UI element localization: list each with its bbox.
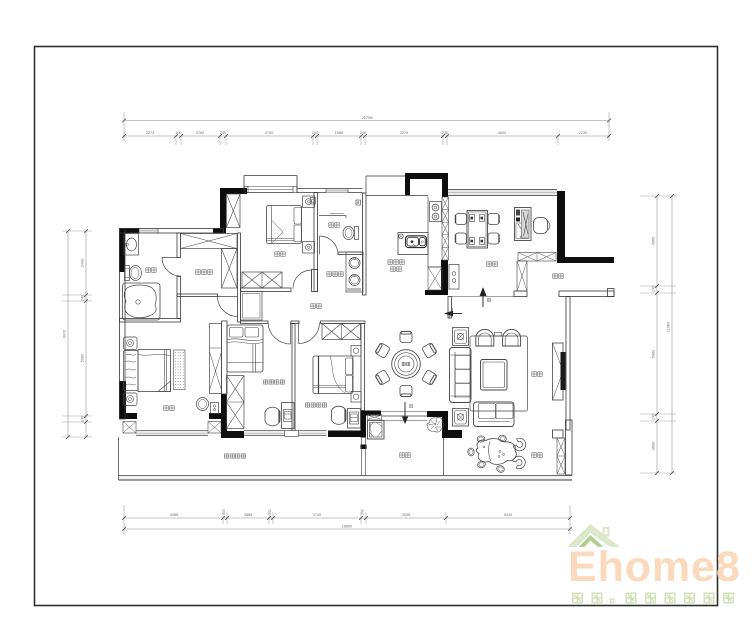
svg-text:3760: 3760 [196, 131, 204, 135]
svg-text:4060: 4060 [652, 237, 656, 245]
svg-text:11064: 11064 [667, 322, 671, 332]
svg-text:4068: 4068 [170, 513, 178, 517]
svg-text:240: 240 [652, 414, 656, 420]
svg-text:5430: 5430 [504, 513, 512, 517]
svg-text:240: 240 [220, 131, 226, 135]
svg-text:240: 240 [81, 416, 85, 422]
svg-text:100: 100 [312, 131, 318, 135]
svg-text:26798: 26798 [361, 115, 373, 120]
svg-text:240: 240 [222, 509, 226, 515]
svg-text:4600: 4600 [498, 131, 506, 135]
svg-text:240: 240 [81, 295, 85, 301]
svg-text:3889: 3889 [244, 513, 252, 517]
svg-text:3740: 3740 [313, 513, 321, 517]
svg-text:240: 240 [652, 286, 656, 292]
svg-text:5060: 5060 [81, 354, 85, 362]
svg-text:Ehome8: Ehome8 [568, 543, 741, 591]
svg-text:16890: 16890 [342, 525, 353, 529]
svg-text:240: 240 [360, 131, 366, 135]
svg-text:2400: 2400 [81, 259, 85, 267]
svg-text:240: 240 [268, 509, 272, 515]
svg-text:9470: 9470 [63, 330, 67, 338]
svg-text:3750: 3750 [265, 131, 273, 135]
svg-text:3229: 3229 [400, 131, 408, 135]
svg-text:100: 100 [175, 131, 181, 135]
svg-text:2230: 2230 [579, 131, 587, 135]
svg-text:2273: 2273 [146, 131, 154, 135]
svg-text:3680: 3680 [652, 442, 656, 450]
svg-text:3538: 3538 [402, 513, 410, 517]
svg-text:5080: 5080 [652, 350, 656, 358]
svg-text:240: 240 [442, 131, 448, 135]
svg-text:1066: 1066 [335, 131, 343, 135]
